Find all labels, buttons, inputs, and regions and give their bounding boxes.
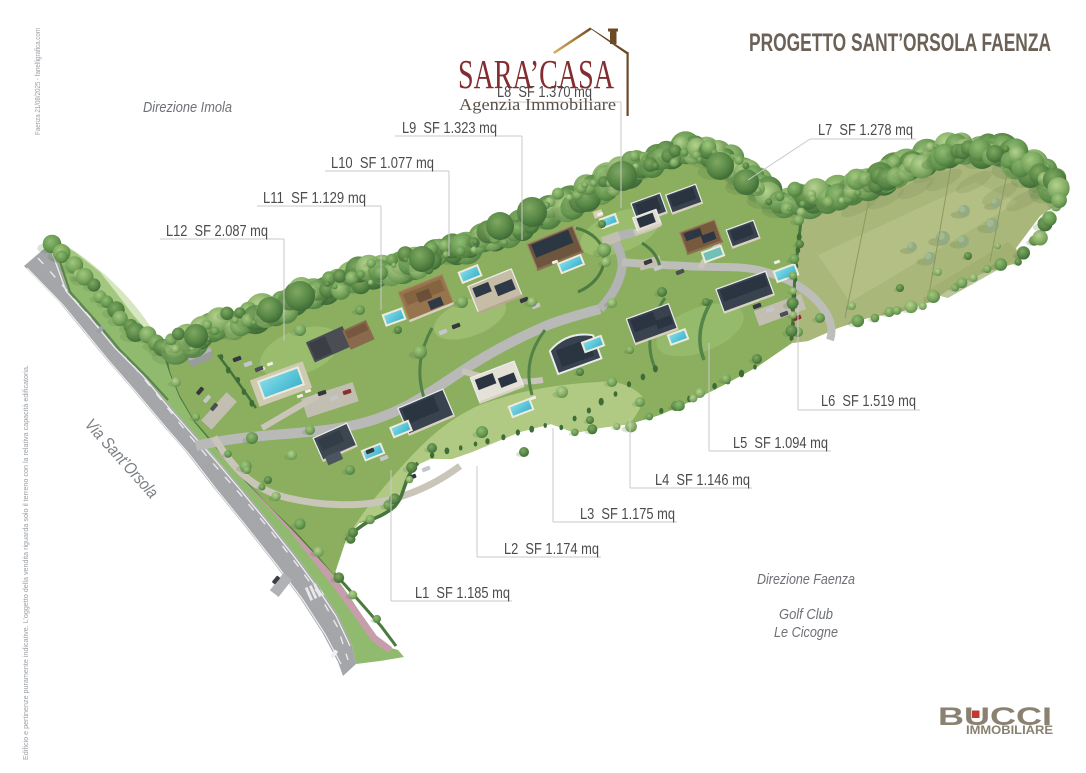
svg-text:L6 SF 1.519 mq: L6 SF 1.519 mq: [821, 393, 916, 410]
svg-text:Faenza 21/08/2025 - fanelligra: Faenza 21/08/2025 - fanelligrafica.com: [35, 28, 42, 135]
svg-text:Edificio e pertinenze purament: Edificio e pertinenze puramente indicati…: [21, 365, 30, 760]
svg-text:L3 SF 1.175 mq: L3 SF 1.175 mq: [580, 506, 675, 523]
svg-text:Direzione Imola: Direzione Imola: [143, 99, 232, 116]
svg-text:L5 SF 1.094 mq: L5 SF 1.094 mq: [733, 435, 828, 452]
svg-text:L7 SF 1.278 mq: L7 SF 1.278 mq: [818, 122, 913, 139]
svg-text:L2 SF 1.174 mq: L2 SF 1.174 mq: [504, 541, 599, 558]
svg-text:PROGETTO SANT’ORSOLA FAENZA: PROGETTO SANT’ORSOLA FAENZA: [749, 29, 1051, 57]
svg-text:Direzione Faenza: Direzione Faenza: [757, 571, 855, 588]
svg-text:IMMOBILIARE: IMMOBILIARE: [966, 723, 1053, 737]
svg-text:L9 SF 1.323 mq: L9 SF 1.323 mq: [402, 120, 497, 137]
svg-text:Le Cicogne: Le Cicogne: [774, 624, 838, 641]
svg-text:L11 SF 1.129 mq: L11 SF 1.129 mq: [263, 190, 366, 207]
svg-text:SARA’CASA: SARA’CASA: [458, 51, 614, 97]
svg-text:L4 SF 1.146 mq: L4 SF 1.146 mq: [655, 472, 750, 489]
svg-text:L12 SF 2.087 mq: L12 SF 2.087 mq: [166, 223, 268, 240]
svg-text:L10 SF 1.077 mq: L10 SF 1.077 mq: [331, 155, 434, 172]
svg-text:L1 SF 1.185 mq: L1 SF 1.185 mq: [415, 585, 510, 602]
svg-text:Agenzia Immobiliare: Agenzia Immobiliare: [459, 95, 616, 114]
svg-text:Golf Club: Golf Club: [779, 606, 833, 623]
